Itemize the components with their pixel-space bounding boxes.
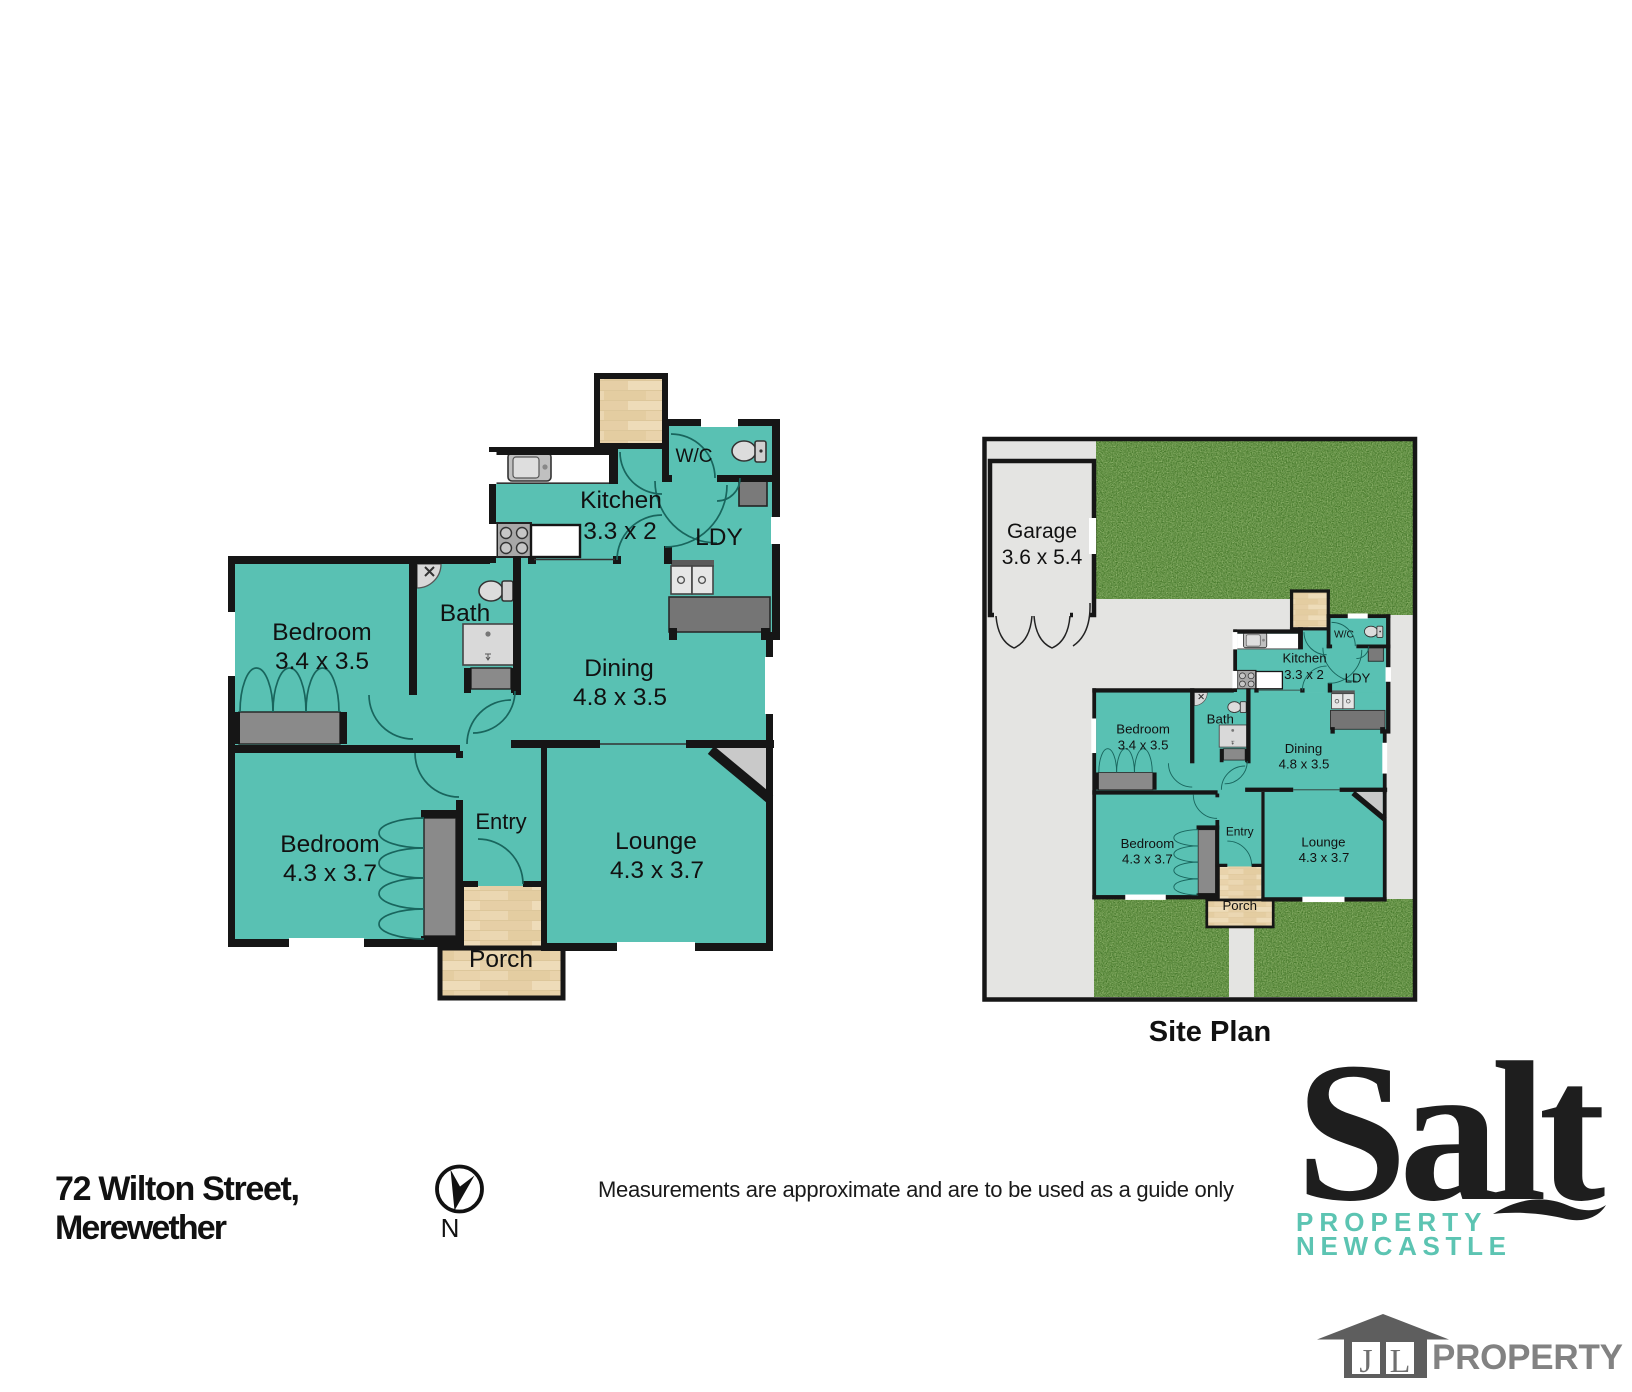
svg-text:J: J	[1359, 1343, 1372, 1380]
svg-text:N: N	[441, 1213, 460, 1243]
svg-text:72 Wilton Street,: 72 Wilton Street,	[55, 1170, 300, 1208]
svg-text:PROPERTY: PROPERTY	[1432, 1338, 1623, 1377]
svg-text:Garage: Garage	[1007, 520, 1077, 543]
svg-text:3.6 x 5.4: 3.6 x 5.4	[1002, 546, 1083, 569]
svg-text:Merewether: Merewether	[55, 1209, 227, 1247]
svg-text:Site Plan: Site Plan	[1149, 1016, 1272, 1048]
svg-text:NEWCASTLE: NEWCASTLE	[1296, 1231, 1512, 1261]
svg-text:Measurements are approximate a: Measurements are approximate and are to …	[598, 1177, 1234, 1202]
svg-text:L: L	[1390, 1343, 1411, 1380]
